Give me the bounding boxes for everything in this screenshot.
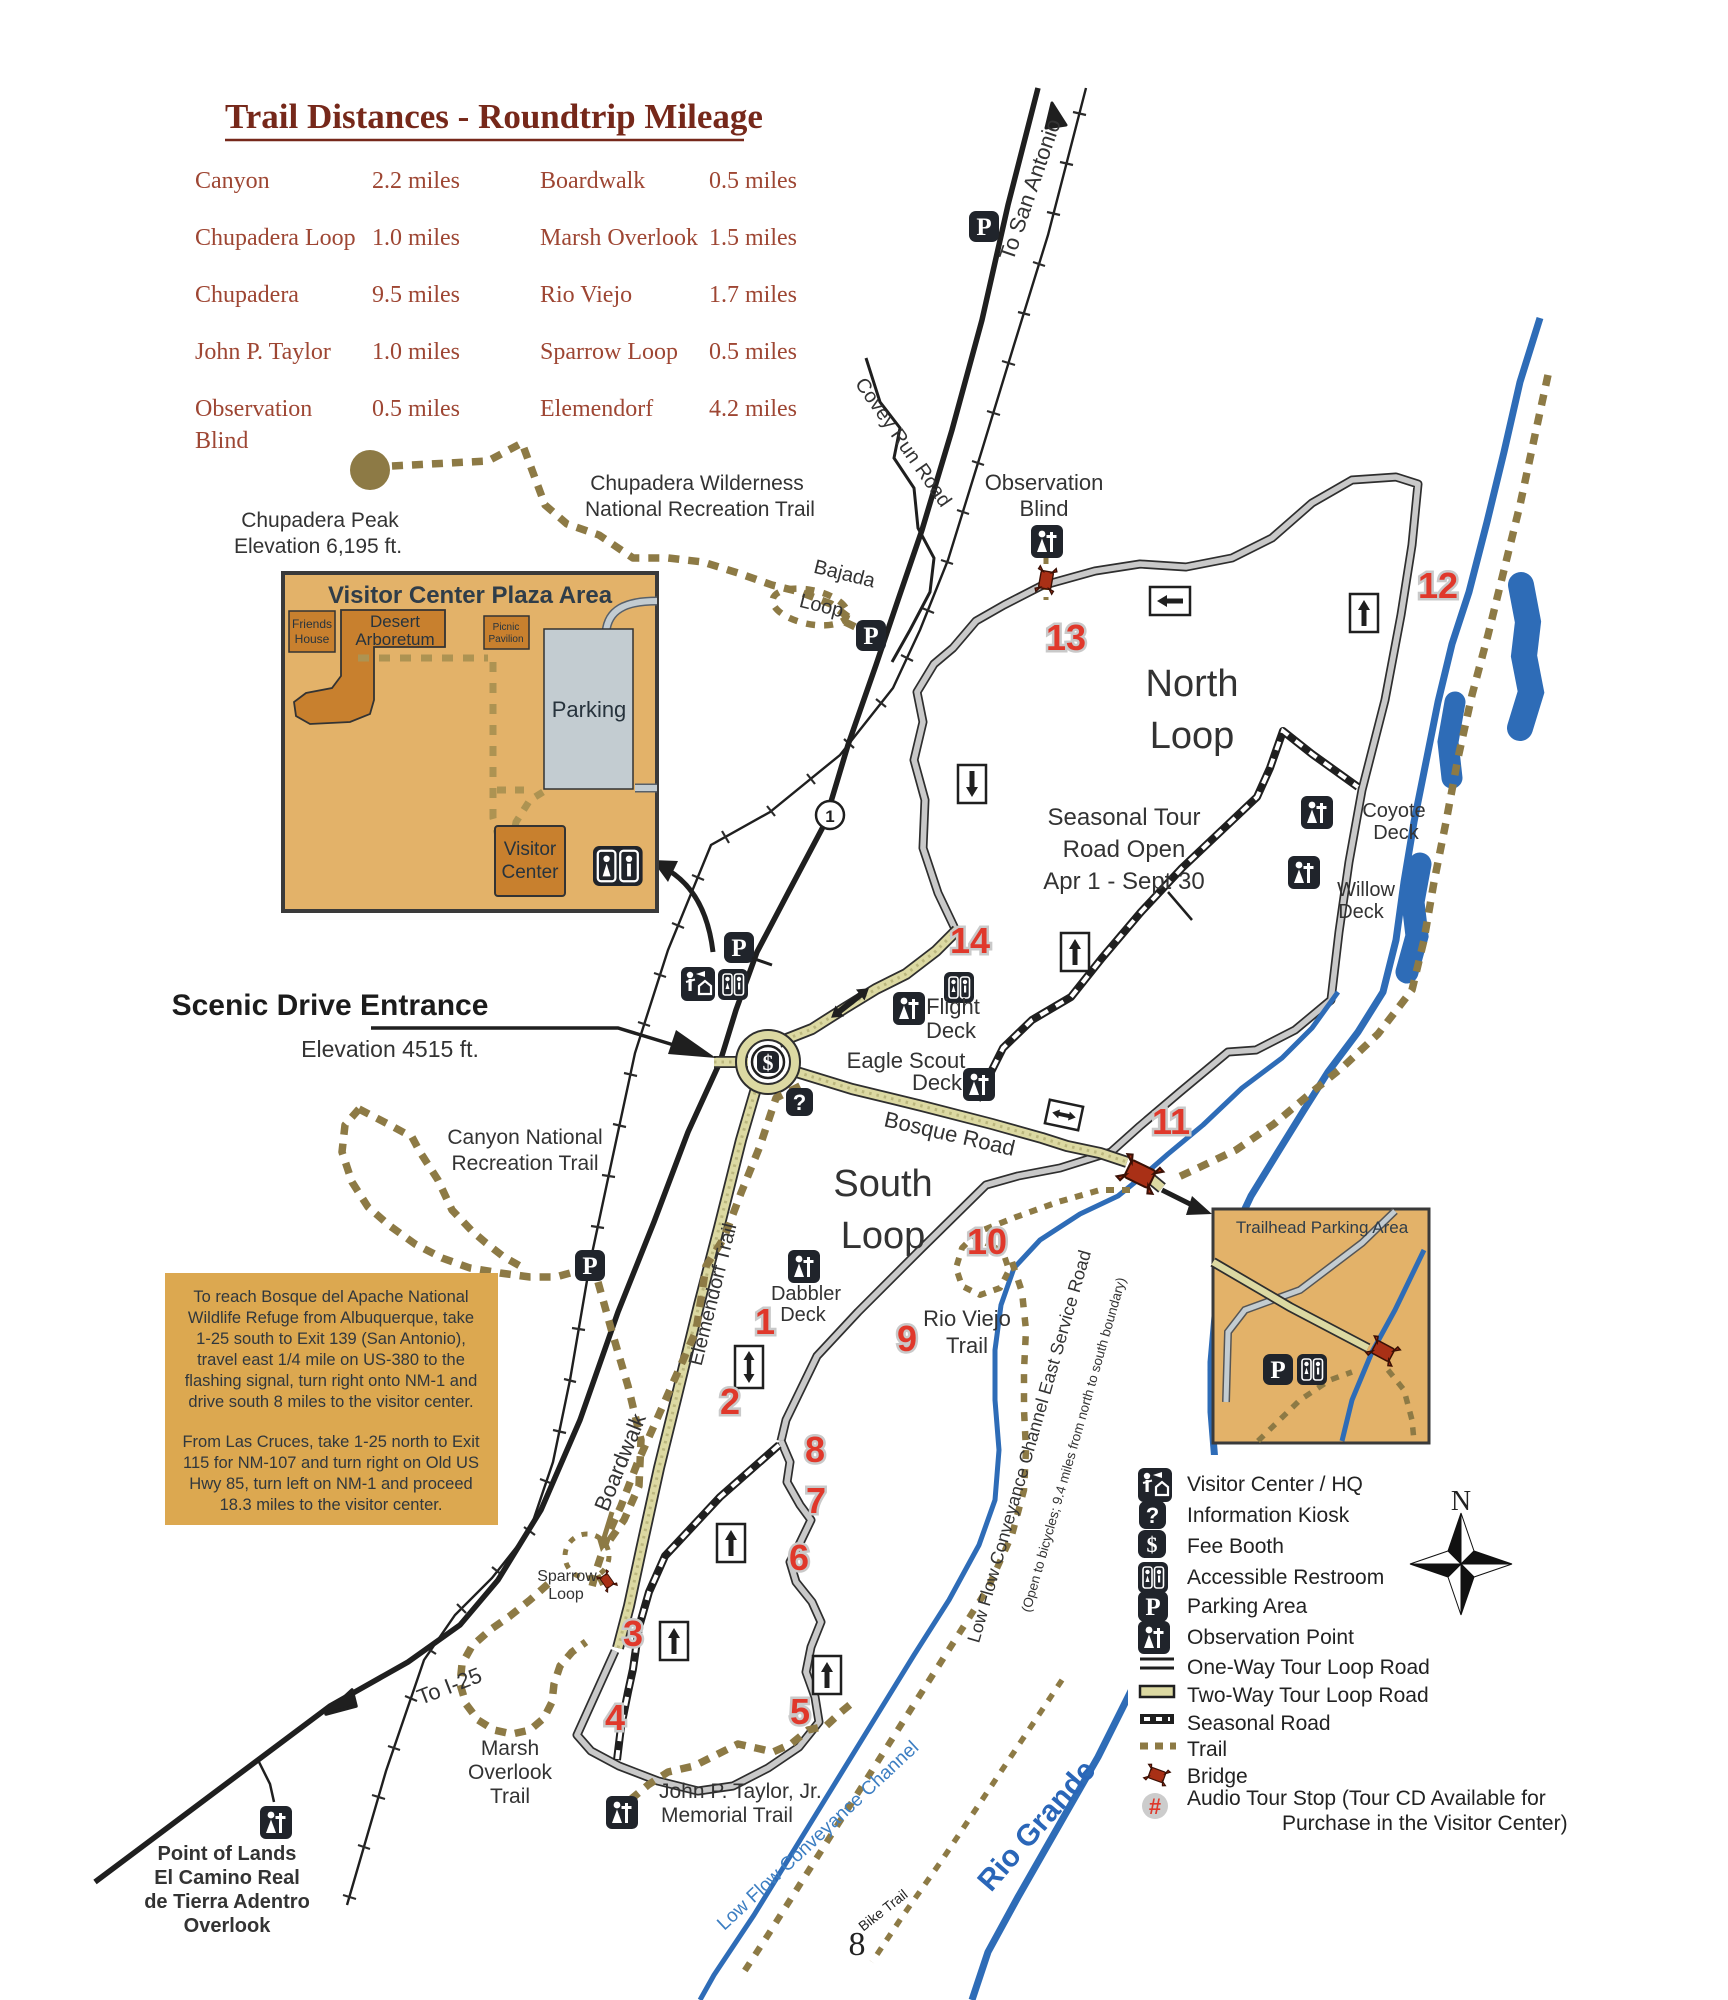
svg-text:Chupadera: Chupadera: [195, 282, 299, 308]
svg-text:1.7 miles: 1.7 miles: [709, 282, 797, 308]
svg-text:Observation Point: Observation Point: [1187, 1626, 1354, 1649]
svg-text:Canyon National: Canyon National: [447, 1126, 602, 1149]
svg-text:drive south 8 miles to the vis: drive south 8 miles to the visitor cente…: [188, 1393, 473, 1411]
svg-text:Rio Viejo: Rio Viejo: [923, 1306, 1011, 1331]
svg-text:8: 8: [849, 1926, 866, 1963]
svg-text:Pavilion: Pavilion: [488, 634, 523, 645]
svg-text:Deck: Deck: [926, 1018, 977, 1043]
svg-text:11: 11: [1152, 1101, 1190, 1142]
svg-text:Blind: Blind: [195, 428, 248, 454]
svg-text:Sparrow Loop: Sparrow Loop: [540, 339, 678, 365]
svg-text:Dabbler: Dabbler: [771, 1283, 841, 1305]
svg-text:$: $: [1147, 1532, 1158, 1557]
svg-text:115 for NM-107 and turn right: 115 for NM-107 and turn right on Old US: [183, 1454, 479, 1472]
svg-text:Visitor Center / HQ: Visitor Center / HQ: [1187, 1473, 1363, 1496]
svg-text:flashing signal, turn right on: flashing signal, turn right onto NM-1 an…: [185, 1372, 478, 1390]
svg-text:Bridge: Bridge: [1187, 1765, 1248, 1788]
svg-text:Friends: Friends: [292, 617, 332, 631]
svg-text:Trail: Trail: [946, 1333, 988, 1358]
svg-text:Deck: Deck: [1373, 822, 1420, 844]
svg-text:Trail Distances - Roundtrip Mi: Trail Distances - Roundtrip Mileage: [225, 97, 763, 136]
svg-text:1-25 south to Exit 139 (San An: 1-25 south to Exit 139 (San Antonio),: [196, 1330, 466, 1348]
svg-text:Deck: Deck: [912, 1070, 963, 1095]
svg-text:10: 10: [967, 1221, 1007, 1262]
svg-text:18.3 miles to the visitor cent: 18.3 miles to the visitor center.: [220, 1496, 443, 1514]
svg-text:Arboretum: Arboretum: [355, 630, 434, 649]
svg-text:0.5 miles: 0.5 miles: [372, 396, 460, 422]
svg-text:Marsh: Marsh: [481, 1737, 539, 1760]
svg-text:Boardwalk: Boardwalk: [540, 168, 645, 194]
svg-text:Blind: Blind: [1020, 496, 1069, 521]
svg-text:N: N: [1451, 1486, 1471, 1517]
svg-text:Overlook: Overlook: [468, 1761, 553, 1784]
svg-text:Overlook: Overlook: [184, 1915, 272, 1937]
svg-text:1.0 miles: 1.0 miles: [372, 339, 460, 365]
svg-text:El Camino Real: El Camino Real: [154, 1867, 300, 1889]
svg-text:4.2 miles: 4.2 miles: [709, 396, 797, 422]
svg-text:3: 3: [623, 1613, 643, 1654]
svg-text:Center: Center: [501, 862, 559, 883]
svg-text:Chupadera Peak: Chupadera Peak: [241, 509, 399, 532]
svg-text:Observation: Observation: [985, 470, 1104, 495]
svg-text:Audio Tour Stop (Tour CD Avail: Audio Tour Stop (Tour CD Available for: [1187, 1787, 1546, 1810]
svg-text:6: 6: [789, 1537, 809, 1578]
svg-text:de Tierra Adentro: de Tierra Adentro: [144, 1891, 310, 1913]
svg-text:0.5 miles: 0.5 miles: [709, 168, 797, 194]
svg-text:Purchase in the Visitor Center: Purchase in the Visitor Center): [1282, 1812, 1568, 1835]
svg-text:Deck: Deck: [1338, 901, 1385, 923]
svg-text:1.0 miles: 1.0 miles: [372, 225, 460, 251]
svg-text:Chupadera Loop: Chupadera Loop: [195, 225, 356, 251]
svg-text:Picnic: Picnic: [493, 622, 520, 633]
svg-text:Deck: Deck: [780, 1304, 827, 1326]
svg-text:Trail: Trail: [490, 1785, 530, 1808]
svg-text:Visitor Center Plaza Area: Visitor Center Plaza Area: [328, 582, 613, 609]
svg-text:Seasonal Road: Seasonal Road: [1187, 1712, 1331, 1735]
svg-text:John P. Taylor, Jr.: John P. Taylor, Jr.: [659, 1780, 822, 1803]
svg-text:Chupadera Wilderness: Chupadera Wilderness: [590, 472, 804, 495]
svg-text:4: 4: [605, 1697, 625, 1738]
svg-text:2: 2: [720, 1381, 740, 1422]
svg-text:travel east 1/4 mile on US-380: travel east 1/4 mile on US-380 to the: [197, 1351, 465, 1369]
svg-text:Parking: Parking: [552, 697, 627, 722]
svg-text:South: South: [833, 1163, 932, 1205]
svg-text:1.5 miles: 1.5 miles: [709, 225, 797, 251]
svg-text:Sparrow: Sparrow: [537, 1568, 597, 1585]
svg-text:Trailhead Parking Area: Trailhead Parking Area: [1236, 1218, 1409, 1237]
svg-text:Two-Way Tour Loop Road: Two-Way Tour Loop Road: [1187, 1684, 1429, 1707]
svg-text:Visitor: Visitor: [504, 839, 557, 860]
svg-text:Seasonal Tour: Seasonal Tour: [1048, 804, 1201, 831]
svg-text:Point of Lands: Point of Lands: [158, 1843, 297, 1865]
svg-text:Loop: Loop: [1150, 715, 1235, 757]
svg-text:#: #: [1149, 1794, 1161, 1819]
svg-text:House: House: [295, 632, 330, 646]
svg-text:5: 5: [790, 1691, 810, 1732]
svg-text:7: 7: [806, 1480, 826, 1521]
svg-text:Observation: Observation: [195, 396, 312, 422]
svg-text:Road Open: Road Open: [1063, 836, 1186, 863]
svg-text:Hwy 85, turn left on NM-1 and: Hwy 85, turn left on NM-1 and proceed: [189, 1475, 472, 1493]
svg-text:Elevation 6,195 ft.: Elevation 6,195 ft.: [234, 535, 402, 558]
svg-text:To reach Bosque del Apache Nat: To reach Bosque del Apache National: [193, 1288, 468, 1306]
svg-text:Scenic Drive Entrance: Scenic Drive Entrance: [172, 989, 489, 1022]
svg-text:0.5 miles: 0.5 miles: [709, 339, 797, 365]
svg-text:Elevation 4515 ft.: Elevation 4515 ft.: [301, 1036, 479, 1062]
svg-text:North: North: [1146, 663, 1239, 705]
svg-text:13: 13: [1046, 617, 1086, 658]
svg-text:9.5 miles: 9.5 miles: [372, 282, 460, 308]
svg-text:From Las Cruces, take 1-25 nor: From Las Cruces, take 1-25 north to Exit: [182, 1433, 480, 1451]
svg-text:Loop: Loop: [548, 1586, 584, 1603]
svg-text:12: 12: [1418, 565, 1458, 606]
svg-text:Memorial Trail: Memorial Trail: [661, 1804, 793, 1827]
svg-text:14: 14: [950, 920, 990, 961]
svg-text:Canyon: Canyon: [195, 168, 270, 194]
svg-text:Wildlife Refuge from Albuquerq: Wildlife Refuge from Albuquerque, take: [188, 1309, 474, 1327]
svg-text:National Recreation Trail: National Recreation Trail: [585, 498, 815, 521]
svg-text:Loop: Loop: [841, 1215, 926, 1257]
svg-text:Apr 1 - Sept 30: Apr 1 - Sept 30: [1043, 868, 1204, 895]
svg-text:Accessible Restroom: Accessible Restroom: [1187, 1566, 1384, 1589]
svg-text:Fee Booth: Fee Booth: [1187, 1535, 1284, 1558]
svg-text:9: 9: [897, 1318, 917, 1359]
svg-text:Elemendorf: Elemendorf: [540, 396, 653, 422]
svg-text:2.2 miles: 2.2 miles: [372, 168, 460, 194]
svg-text:8: 8: [805, 1429, 825, 1470]
svg-text:Marsh Overlook: Marsh Overlook: [540, 225, 698, 251]
svg-text:Flight: Flight: [926, 994, 980, 1019]
svg-text:One-Way Tour Loop Road: One-Way Tour Loop Road: [1187, 1656, 1430, 1679]
svg-text:Coyote: Coyote: [1362, 800, 1425, 822]
svg-text:Information Kiosk: Information Kiosk: [1187, 1504, 1350, 1527]
svg-text:Rio Viejo: Rio Viejo: [540, 282, 632, 308]
svg-text:Recreation Trail: Recreation Trail: [451, 1152, 598, 1175]
svg-text:1: 1: [825, 807, 834, 826]
svg-text:Desert: Desert: [370, 612, 420, 631]
svg-text:Willow: Willow: [1337, 879, 1395, 901]
svg-text:John P. Taylor: John P. Taylor: [195, 339, 331, 365]
svg-text:Trail: Trail: [1187, 1738, 1227, 1761]
svg-text:Parking Area: Parking Area: [1187, 1595, 1308, 1618]
svg-text:1: 1: [755, 1301, 775, 1342]
